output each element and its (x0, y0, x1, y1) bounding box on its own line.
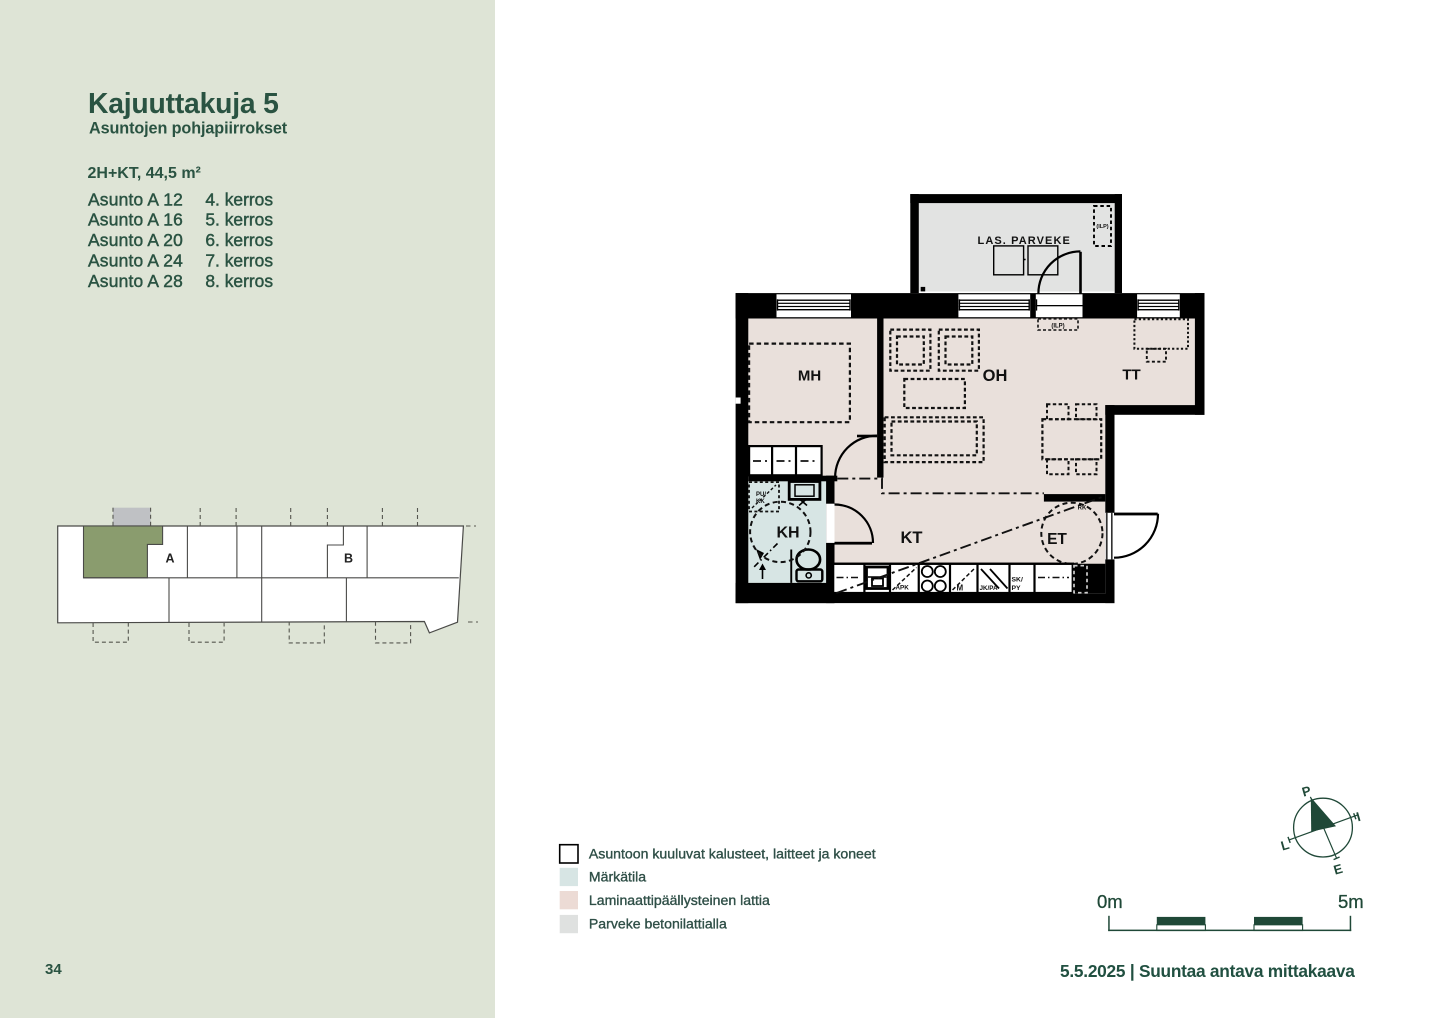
svg-text:Asunto A 24: Asunto A 24 (88, 251, 183, 271)
svg-text:JK/PA: JK/PA (980, 585, 999, 592)
svg-text:6. kerros: 6. kerros (205, 230, 273, 250)
svg-text:KH: KH (776, 525, 799, 542)
svg-text:OH: OH (983, 367, 1008, 385)
svg-text:8. kerros: 8. kerros (205, 271, 273, 291)
svg-text:Asunto A 20: Asunto A 20 (88, 230, 183, 250)
svg-text:(ILP): (ILP) (1051, 323, 1064, 329)
svg-text:Asunto A 12: Asunto A 12 (88, 189, 183, 209)
svg-text:7. kerros: 7. kerros (205, 251, 273, 271)
svg-text:PY: PY (1012, 585, 1022, 592)
svg-text:0m: 0m (1097, 891, 1123, 912)
svg-text:LAS. PARVEKE: LAS. PARVEKE (978, 235, 1071, 247)
svg-text:M: M (957, 584, 964, 593)
svg-text:5m: 5m (1338, 891, 1364, 912)
svg-text:Asunto A 16: Asunto A 16 (88, 210, 183, 230)
svg-text:TT: TT (1122, 367, 1140, 384)
svg-text:Asuntojen pohjapiirrokset: Asuntojen pohjapiirrokset (89, 120, 288, 138)
svg-text:Asunto A 28: Asunto A 28 (88, 271, 183, 291)
svg-text:5.5.2025 | Suuntaa antava mitt: 5.5.2025 | Suuntaa antava mittakaava (1060, 961, 1355, 981)
svg-text:APK: APK (896, 585, 910, 592)
svg-text:A: A (165, 552, 174, 566)
svg-text:RK: RK (1078, 506, 1087, 512)
svg-text:B: B (344, 552, 353, 566)
svg-text:Laminaattipäällysteinen lattia: Laminaattipäällysteinen lattia (589, 892, 770, 908)
svg-text:4. kerros: 4. kerros (205, 189, 273, 209)
svg-text:SK/: SK/ (1012, 577, 1023, 584)
svg-text:5. kerros: 5. kerros (205, 210, 273, 230)
svg-text:(ILP): (ILP) (1096, 224, 1108, 230)
svg-text:ET: ET (1047, 531, 1067, 548)
svg-text:Asuntoon kuuluvat kalusteet, l: Asuntoon kuuluvat kalusteet, laitteet ja… (589, 846, 876, 862)
svg-text:PU/: PU/ (756, 492, 766, 498)
svg-text:2H+KT, 44,5 m²: 2H+KT, 44,5 m² (88, 165, 201, 182)
svg-text:Parveke betonilattialla: Parveke betonilattialla (589, 916, 727, 932)
svg-text:MH: MH (798, 368, 821, 385)
svg-text:KT: KT (901, 529, 923, 547)
svg-text:Kajuuttakuja 5: Kajuuttakuja 5 (88, 87, 279, 119)
svg-text:Märkätila: Märkätila (589, 869, 646, 885)
svg-text:34: 34 (45, 961, 62, 978)
svg-text:KK: KK (756, 499, 765, 505)
